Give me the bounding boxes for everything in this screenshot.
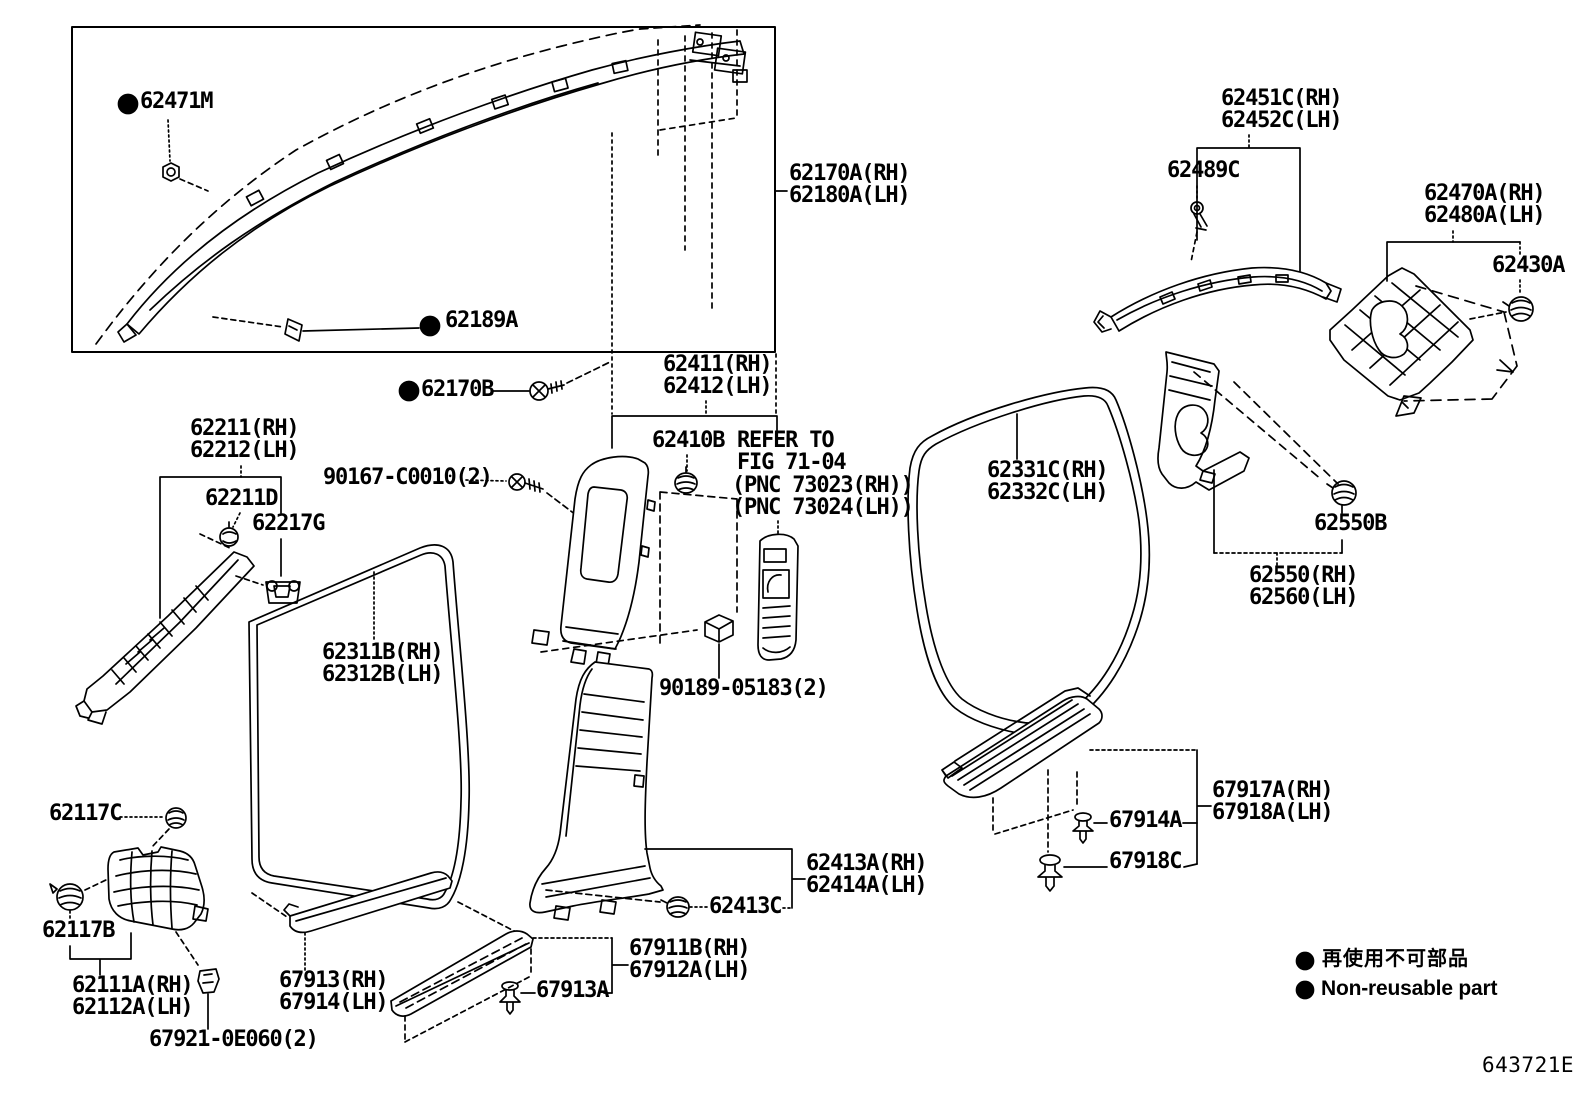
screw-62170B-icon: [492, 362, 610, 400]
rear-door-weatherstrip-drawing: [908, 388, 1149, 735]
part-label-62311B: 62311B(RH): [322, 643, 442, 663]
part-label-62211: 62211(RH): [190, 419, 298, 439]
a-pillar-garnish-drawing: [76, 534, 254, 724]
part-label-67914: 67914(LH): [279, 993, 387, 1013]
part-label-67913A: 67913A: [536, 981, 608, 1001]
part-label-62430A: 62430A: [1492, 256, 1564, 276]
part-label-62117C: 62117C: [49, 804, 121, 824]
non-reusable-bullet-icon: [119, 95, 138, 114]
part-label-90167: 90167-C0010(2): [323, 468, 492, 488]
grommet-62430A-icon: [1470, 280, 1533, 321]
b-pillar-upper-garnish-drawing: [532, 457, 737, 666]
grommet-62117B-icon: [50, 879, 108, 921]
roof-side-garnish-drawing: [1094, 268, 1341, 332]
front-scuff-plate-drawing: [284, 872, 452, 970]
clip-62217G-icon: [236, 576, 300, 603]
clip-90189-icon: [705, 615, 733, 678]
part-label-62470A: 62470A(RH): [1424, 184, 1544, 204]
nut-62471M-icon: [163, 120, 208, 191]
part-label-62410B: 62410B: [652, 431, 724, 451]
part-label-62212: 62212(LH): [190, 441, 298, 461]
part-label-62411: 62411(RH): [663, 355, 771, 375]
non-reusable-bullet-icon: [1297, 982, 1314, 999]
part-label-62489C: 62489C: [1167, 161, 1239, 181]
inset-box: [72, 27, 775, 352]
legend-text-en: Non-reusable part: [1321, 979, 1497, 999]
part-label-62312B: 62312B(LH): [322, 665, 442, 685]
part-label-67921: 67921-0E060(2): [149, 1030, 318, 1050]
part-label-62550B: 62550B: [1314, 514, 1386, 534]
front-scuff-sill-textured-drawing: [391, 931, 533, 1042]
grommet-62550B-icon: [1327, 481, 1356, 505]
part-label-62332C: 62332C(LH): [987, 483, 1107, 503]
part-label-62451C: 62451C(RH): [1221, 89, 1341, 109]
cowl-side-trim-drawing: [108, 847, 208, 930]
non-reusable-bullet-icon: [1297, 953, 1314, 970]
b-pillar-lower-garnish-drawing: [530, 662, 663, 920]
refer-note-line1: REFER TO: [737, 431, 833, 451]
refer-note-line4: (PNC 73024(LH)): [732, 498, 913, 518]
part-label-62550: 62550(RH): [1249, 566, 1357, 586]
part-label-62560: 62560(LH): [1249, 588, 1357, 608]
part-label-67911B: 67911B(RH): [629, 939, 749, 959]
part-label-90189: 90189-05183(2): [659, 679, 828, 699]
part-label-62414A: 62414A(LH): [806, 876, 926, 896]
clip-62489C-icon: [1191, 186, 1207, 262]
grommet-62211D-icon: [220, 513, 240, 546]
diagram-code: 643721E: [1482, 1055, 1574, 1075]
part-label-62413A: 62413A(RH): [806, 854, 926, 874]
part-label-62189A: 62189A: [445, 311, 517, 331]
part-label-67917A: 67917A(RH): [1212, 781, 1332, 801]
part-label-67918A: 67918A(LH): [1212, 803, 1332, 823]
quarter-pillar-garnish-drawing: [1330, 268, 1517, 416]
part-label-62211D: 62211D: [205, 489, 277, 509]
part-label-62170B: 62170B: [421, 380, 493, 400]
part-label-67918C: 67918C: [1109, 852, 1181, 872]
grommet-62117C-icon: [120, 808, 186, 848]
part-label-62170A: 62170A(RH): [789, 164, 909, 184]
refer-note-line2: FIG 71-04: [737, 453, 845, 473]
part-label-62331C: 62331C(RH): [987, 461, 1107, 481]
part-label-62217G: 62217G: [252, 514, 324, 534]
part-label-62480A: 62480A(LH): [1424, 206, 1544, 226]
switch-panel-drawing: [758, 521, 798, 660]
part-label-62471M: 62471M: [140, 92, 212, 112]
legend-text-jp: 再使用不可部品: [1322, 948, 1469, 968]
grommet-62410B-icon: [675, 455, 697, 493]
part-label-62112A: 62112A(LH): [72, 998, 192, 1018]
part-label-62111A: 62111A(RH): [72, 976, 192, 996]
part-label-62180A: 62180A(LH): [789, 186, 909, 206]
part-label-67914A: 67914A: [1109, 811, 1181, 831]
part-label-67912A: 67912A(LH): [629, 961, 749, 981]
clip-62189A-icon: [213, 317, 419, 341]
parts-diagram: 62471M 62189A 62170A(RH) 62180A(LH) 6217…: [0, 0, 1592, 1099]
c-pillar-garnish-drawing: [1158, 352, 1338, 490]
part-label-62117B: 62117B: [42, 921, 114, 941]
part-label-62413C: 62413C: [709, 897, 781, 917]
part-label-67913: 67913(RH): [279, 971, 387, 991]
part-label-62412: 62412(LH): [663, 377, 771, 397]
part-label-62452C: 62452C(LH): [1221, 111, 1341, 131]
refer-note-line3: (PNC 73023(RH)): [732, 476, 913, 496]
bracket-62451C: [1197, 135, 1300, 271]
non-reusable-bullet-icon: [400, 382, 419, 401]
non-reusable-bullet-icon: [421, 317, 440, 336]
bracket-67917A: [1090, 750, 1211, 864]
